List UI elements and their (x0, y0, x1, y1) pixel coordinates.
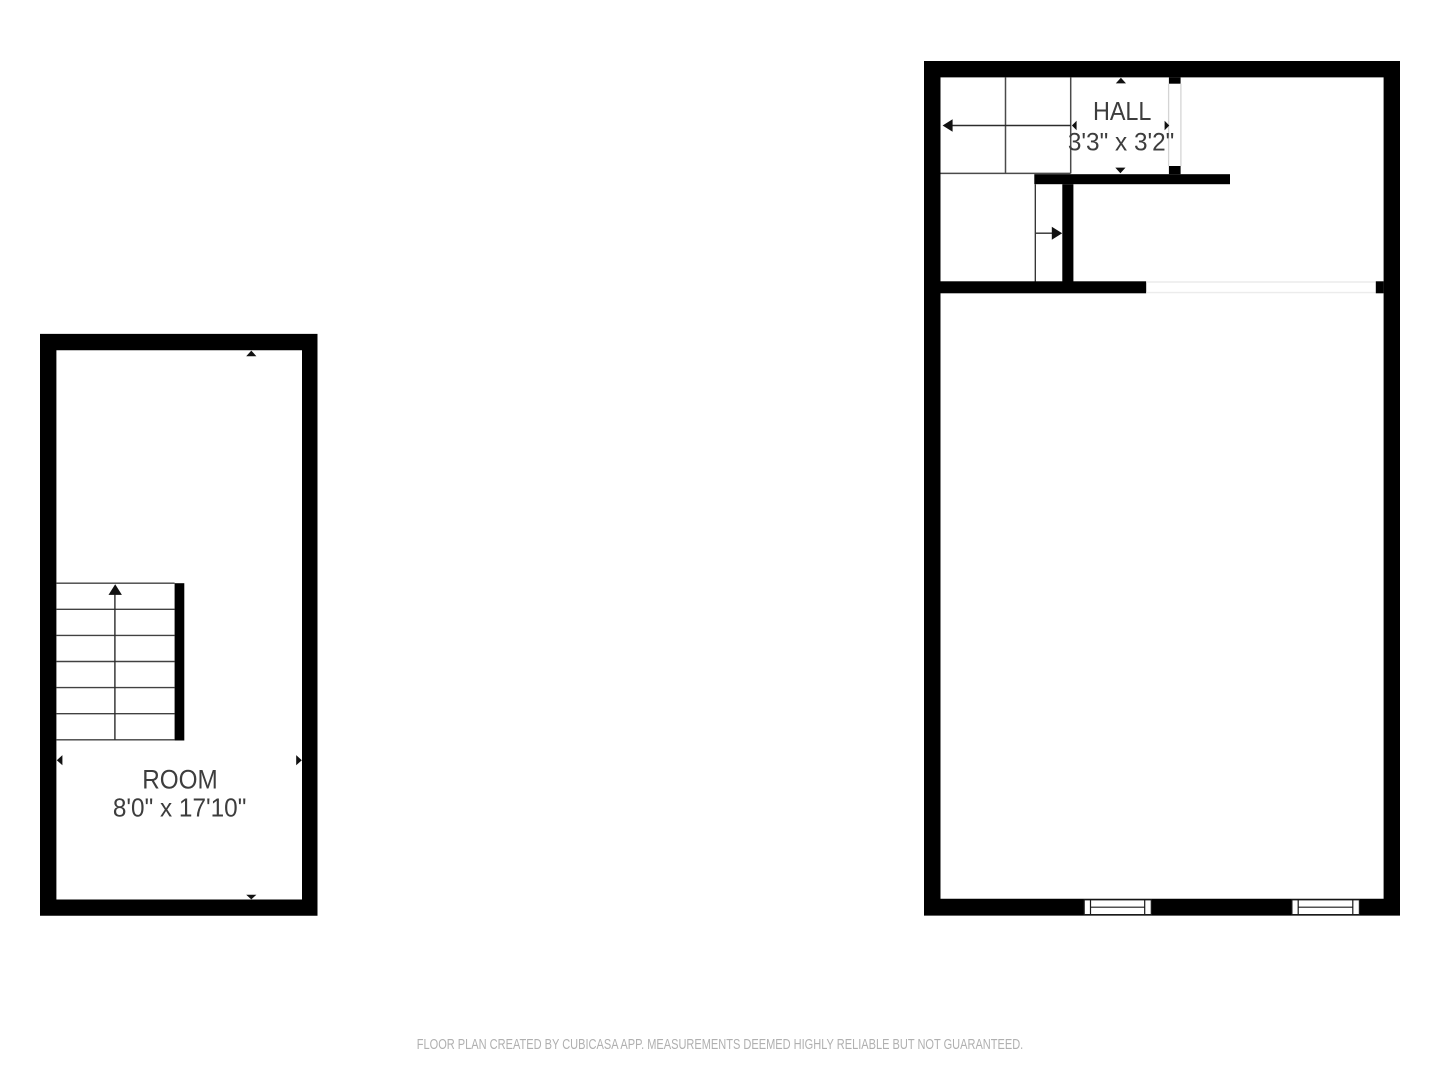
svg-text:FLOOR PLAN CREATED BY CUBICASA: FLOOR PLAN CREATED BY CUBICASA APP. MEAS… (417, 1037, 1024, 1053)
svg-text:ROOM: ROOM (142, 764, 218, 794)
svg-text:8'0" x 17'10": 8'0" x 17'10" (113, 793, 247, 823)
svg-text:3'3" x 3'2": 3'3" x 3'2" (1068, 129, 1175, 157)
svg-text:HALL: HALL (1093, 98, 1152, 126)
